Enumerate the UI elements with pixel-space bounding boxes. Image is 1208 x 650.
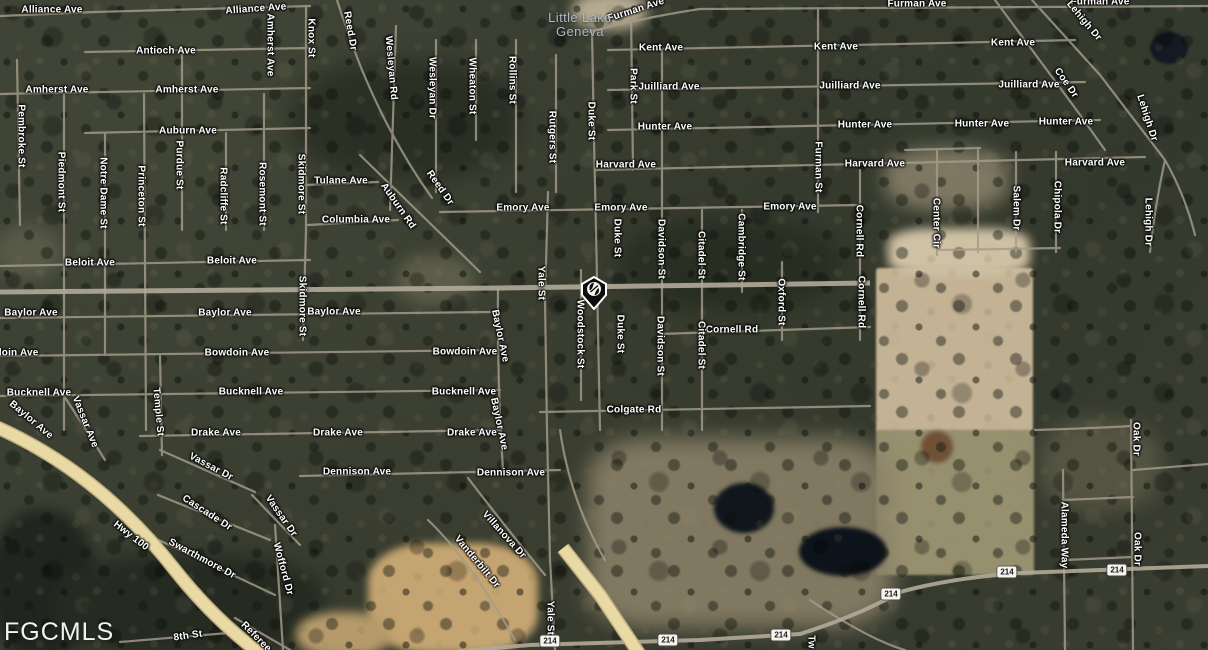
lake-place-label-line1: Little Lake (548, 11, 612, 25)
satellite-map[interactable]: Alliance AveAlliance AveAntioch AveAmher… (0, 0, 1208, 650)
route-214-shield: 214 (658, 635, 677, 646)
route-214-shield: 214 (881, 589, 900, 600)
fgcmls-watermark: FGCMLS (4, 618, 114, 647)
route-214-shield: 214 (540, 636, 559, 647)
lake-place-label-line2: Geneva (548, 25, 612, 39)
property-location-marker[interactable] (581, 276, 607, 310)
route-214-shield: 214 (1107, 565, 1126, 576)
route-214-shield: 214 (997, 567, 1016, 578)
route-214-shield: 214 (771, 630, 790, 641)
marker-pin-icon (581, 276, 607, 310)
road-network (0, 0, 1208, 650)
lake-place-label: Little Lake Geneva (548, 11, 612, 39)
